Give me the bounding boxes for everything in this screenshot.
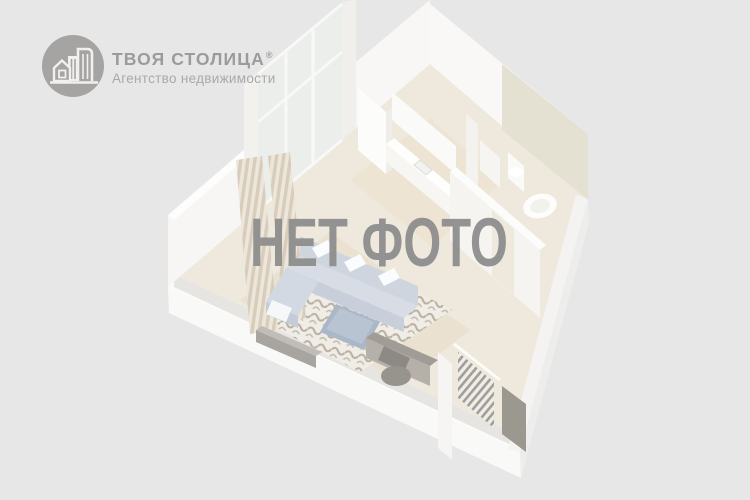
photo-placeholder: ТВОЯ СТОЛИЦА® Агентство недвижимости НЕТ… [0, 0, 750, 500]
no-photo-watermark: НЕТ ФОТО [0, 0, 750, 500]
no-photo-text: НЕТ ФОТО [250, 204, 508, 281]
